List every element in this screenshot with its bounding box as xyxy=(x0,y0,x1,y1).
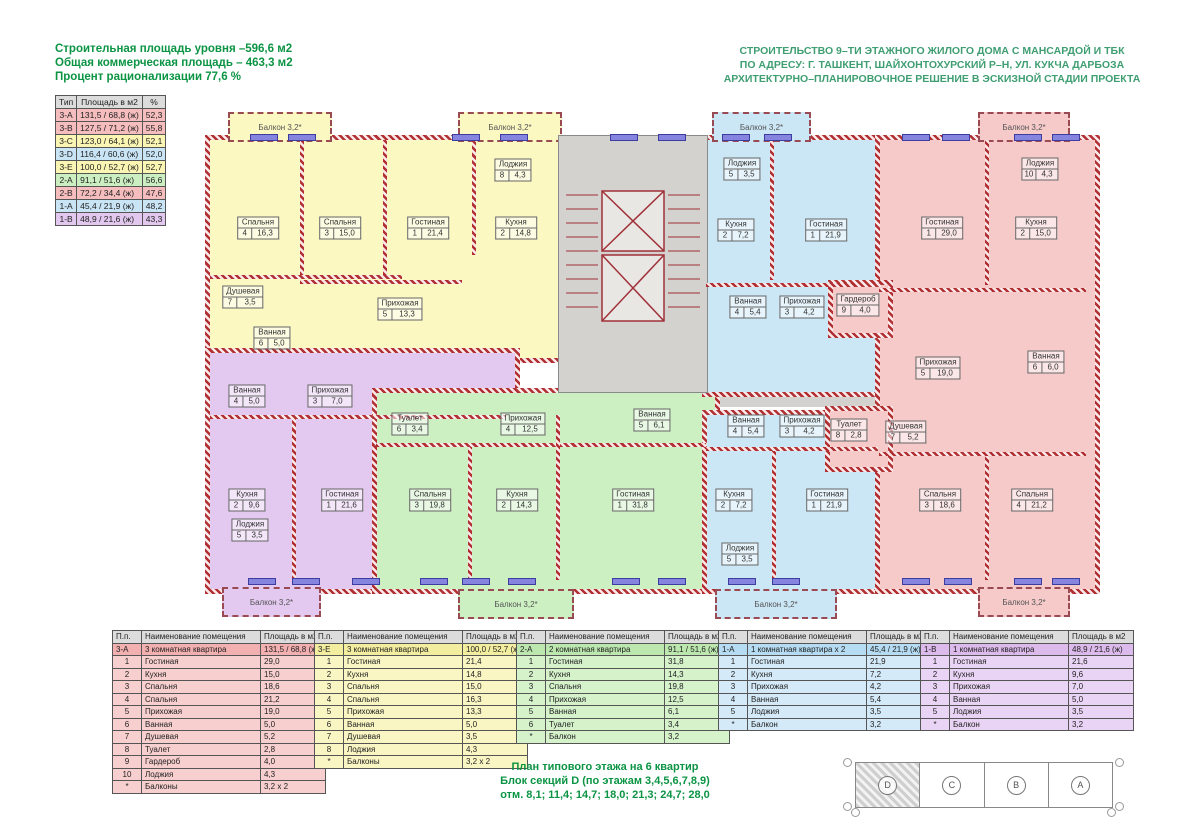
core-drawing xyxy=(558,135,708,393)
table-cell: * xyxy=(113,781,142,794)
room-name: Гостиная xyxy=(407,217,449,229)
window xyxy=(902,578,930,585)
room-label: Прихожая412,5 xyxy=(500,413,545,436)
room-values: 104,3 xyxy=(1021,170,1058,181)
room-number: 5 xyxy=(634,421,648,431)
interior-wall xyxy=(985,140,989,285)
room-area: 7,0 xyxy=(322,397,351,407)
table-cell: 3 xyxy=(517,681,546,694)
table-cell: 5 xyxy=(113,706,142,719)
room-label: Ванная45,4 xyxy=(727,415,764,438)
room-area: 29,0 xyxy=(936,229,962,239)
room-number: 4 xyxy=(229,397,243,407)
table-row: 3Прихожая7,0 xyxy=(921,681,1134,694)
room-values: 65,0 xyxy=(253,339,290,350)
table-cell: Гостиная xyxy=(142,656,261,669)
room-number: 3 xyxy=(320,229,334,239)
room-values: 73,5 xyxy=(222,298,263,309)
table-cell: Душевая xyxy=(142,731,261,744)
table-row: 7Душевая3,5 xyxy=(315,731,528,744)
room-name: Спальня xyxy=(237,217,279,229)
room-label: Прихожая34,2 xyxy=(779,296,824,319)
table-cell: Гардероб xyxy=(142,756,261,769)
table-row: 1Гостиная21,6 xyxy=(921,656,1134,669)
room-name: Кухня xyxy=(715,489,752,501)
room-name: Гостиная xyxy=(921,217,963,229)
table-cell: Спальня xyxy=(344,693,463,706)
table-row: *Балконы3,2 х 2 xyxy=(113,781,326,794)
table-cell: 6 xyxy=(315,718,344,731)
room-values: 84,3 xyxy=(494,171,531,182)
room-number: 3 xyxy=(920,501,934,511)
room-name: Спальня xyxy=(919,489,961,501)
room-name: Кухня xyxy=(228,489,265,501)
room-schedule-table: П.п.Наименование помещенияПлощадь в м21-… xyxy=(920,630,1134,731)
balcony-label: Балкон 3,2* xyxy=(250,598,293,607)
table-header-cell: П.п. xyxy=(719,631,748,644)
room-name: Прихожая xyxy=(915,357,960,369)
apartment-title-row: 1-В1 комнатная квартира48,9 / 21,6 (ж) xyxy=(921,643,1134,656)
interior-wall xyxy=(292,419,296,579)
room-number: 2 xyxy=(229,501,243,511)
balcony-label: Балкон 3,2* xyxy=(1002,123,1045,132)
room-name: Спальня xyxy=(409,489,451,501)
room-number: 5 xyxy=(916,369,930,379)
room-label: Туалет63,4 xyxy=(391,413,428,436)
window xyxy=(1052,578,1080,585)
table-cell: Прихожая xyxy=(748,681,867,694)
room-name: Ванная xyxy=(228,385,265,397)
table-row: 6Туалет3,4 xyxy=(517,718,730,731)
apartment-title-row: 2-А2 комнатная квартира91,1 / 51,6 (ж) xyxy=(517,643,730,656)
table-cell: 3 xyxy=(921,681,950,694)
table-row: 8Туалет2,8 xyxy=(113,743,326,756)
room-area: 19,8 xyxy=(424,501,450,511)
room-values: 56,1 xyxy=(633,421,670,432)
table-cell: 3 xyxy=(113,681,142,694)
room-label: Спальня318,6 xyxy=(919,489,961,512)
room-name: Прихожая xyxy=(377,298,422,310)
room-number: 7 xyxy=(223,298,237,308)
table-cell: 4 xyxy=(517,693,546,706)
room-number: 4 xyxy=(1012,501,1026,511)
room-label: Кухня27,2 xyxy=(717,219,754,242)
table-cell: 4 xyxy=(113,693,142,706)
table-cell: 3,2 xyxy=(665,731,730,744)
table-cell: 5 xyxy=(517,706,546,719)
room-number: 3 xyxy=(410,501,424,511)
table-cell: 10 xyxy=(113,768,142,781)
room-values: 53,5 xyxy=(721,555,758,566)
room-values: 34,2 xyxy=(779,308,824,319)
table-cell: 8 xyxy=(113,743,142,756)
interior-wall xyxy=(300,140,304,275)
room-label: Прихожая34,2 xyxy=(779,415,824,438)
room-number: 1 xyxy=(806,231,820,241)
apartment-title-cell: 3-Е xyxy=(315,643,344,656)
room-label: Лоджия104,3 xyxy=(1021,158,1058,181)
room-values: 131,8 xyxy=(612,501,654,512)
room-values: 121,9 xyxy=(805,231,847,242)
room-area: 4,3 xyxy=(509,171,530,181)
room-number: 10 xyxy=(1022,170,1036,180)
room-area: 5,4 xyxy=(744,308,765,318)
room-name: Лоджия xyxy=(723,158,760,170)
room-name: Прихожая xyxy=(307,385,352,397)
table-row: 10Лоджия4,3 xyxy=(113,768,326,781)
caption-line: отм. 8,1; 11,4; 14,7; 18,0; 21,3; 24,7; … xyxy=(440,788,770,802)
table-cell: * xyxy=(921,718,950,731)
table-cell: 9 xyxy=(113,756,142,769)
table-cell: 8 xyxy=(315,743,344,756)
room-area: 7,2 xyxy=(732,231,753,241)
room-label: Лоджия84,3 xyxy=(494,159,531,182)
table-header-cell: Наименование помещения xyxy=(142,631,261,644)
room-area: 5,2 xyxy=(900,433,925,443)
keyplan-axis-marker xyxy=(1115,758,1124,767)
room-name: Кухня xyxy=(717,219,754,231)
room-area: 15,0 xyxy=(334,229,360,239)
table-cell: Ванная xyxy=(950,693,1069,706)
apartment-title-cell: 1 комнатная квартира х 2 xyxy=(748,643,867,656)
room-number: 4 xyxy=(728,427,742,437)
interior-wall xyxy=(706,283,881,287)
room-label: Кухня215,0 xyxy=(1015,217,1057,240)
room-area: 2,8 xyxy=(845,431,866,441)
window xyxy=(292,578,320,585)
room-label: Гостиная129,0 xyxy=(921,217,963,240)
room-label: Гостиная121,6 xyxy=(321,489,363,512)
table-row: 9Гардероб4,0 xyxy=(113,756,326,769)
interior-wall xyxy=(770,140,774,280)
room-label: Лоджия53,5 xyxy=(723,158,760,181)
table-cell: 3,2 xyxy=(1069,718,1134,731)
table-cell: 7,0 xyxy=(1069,681,1134,694)
room-area: 19,0 xyxy=(930,369,959,379)
room-label: Ванная65,0 xyxy=(253,327,290,350)
room-schedule-table: П.п.Наименование помещенияПлощадь в м23-… xyxy=(112,630,326,794)
room-area: 21,9 xyxy=(821,501,847,511)
table-cell: Ванная xyxy=(142,718,261,731)
table-cell: Душевая xyxy=(344,731,463,744)
window xyxy=(612,578,640,585)
table-cell: 9,6 xyxy=(1069,668,1134,681)
apartment-title-cell: 2 комнатная квартира xyxy=(546,643,665,656)
keyplan-axis-marker xyxy=(851,808,860,817)
balcony-label: Балкон 3,2* xyxy=(258,123,301,132)
room-name: Ванная xyxy=(727,415,764,427)
room-name: Прихожая xyxy=(779,296,824,308)
window xyxy=(352,578,380,585)
room-values: 37,0 xyxy=(307,397,352,408)
table-cell: Кухня xyxy=(142,668,261,681)
room-number: 2 xyxy=(718,231,732,241)
window xyxy=(250,134,278,141)
table-cell: Прихожая xyxy=(950,681,1069,694)
room-name: Гардероб xyxy=(836,294,879,306)
room-values: 121,6 xyxy=(321,501,363,512)
plan-caption: План типового этажа на 6 квартирБлок сек… xyxy=(440,760,770,802)
table-row: 8Лоджия4,3 xyxy=(315,743,528,756)
window xyxy=(420,578,448,585)
table-cell: Прихожая xyxy=(344,706,463,719)
table-row: 7Душевая5,2 xyxy=(113,731,326,744)
table-row: *Балкон3,2 xyxy=(921,718,1134,731)
window xyxy=(288,134,316,141)
table-cell: * xyxy=(719,718,748,731)
room-number: 2 xyxy=(496,229,510,239)
table-cell: 2 xyxy=(113,668,142,681)
room-label: Спальня421,2 xyxy=(1011,489,1053,512)
room-label: Гостиная121,9 xyxy=(805,219,847,242)
room-schedule-table: П.п.Наименование помещенияПлощадь в м22-… xyxy=(516,630,730,744)
room-area: 3,4 xyxy=(406,425,427,435)
interior-wall xyxy=(879,288,1086,292)
keyplan-section-A: A xyxy=(1049,763,1112,807)
room-label: Ванная45,0 xyxy=(228,385,265,408)
table-cell: Кухня xyxy=(748,668,867,681)
keyplan-section-C: C xyxy=(920,763,984,807)
room-name: Ванная xyxy=(253,327,290,339)
room-name: Душевая xyxy=(885,421,926,433)
table-row: 5Лоджия3,5 xyxy=(921,706,1134,719)
room-label: Душевая73,5 xyxy=(222,286,263,309)
room-area: 3,5 xyxy=(736,555,757,565)
room-number: 4 xyxy=(730,308,744,318)
room-values: 63,4 xyxy=(391,425,428,436)
room-area: 31,8 xyxy=(627,501,653,511)
room-label: Туалет82,8 xyxy=(830,419,867,442)
table-row: 1Гостиная21,9 xyxy=(719,656,932,669)
window xyxy=(728,578,756,585)
table-row: *Балкон3,2 xyxy=(719,718,932,731)
table-row: 4Ванная5,4 xyxy=(719,693,932,706)
interior-wall xyxy=(706,447,878,451)
table-cell: 6 xyxy=(517,718,546,731)
table-row: 4Спальня21,2 xyxy=(113,693,326,706)
room-area: 5,0 xyxy=(268,339,289,349)
window xyxy=(772,578,800,585)
room-area: 7,2 xyxy=(730,501,751,511)
room-name: Кухня xyxy=(495,217,537,229)
room-area: 14,8 xyxy=(510,229,536,239)
keyplan-section-label: B xyxy=(1007,776,1026,795)
table-row: 6Ванная5,0 xyxy=(113,718,326,731)
table-header-cell: П.п. xyxy=(517,631,546,644)
room-values: 45,0 xyxy=(228,397,265,408)
apartment-title-row: 3-А3 комнатная квартира131,5 / 68,8 (ж) xyxy=(113,643,326,656)
table-cell: 5 xyxy=(921,706,950,719)
room-area: 21,9 xyxy=(820,231,846,241)
table-cell: 5,0 xyxy=(1069,693,1134,706)
apartment-title-cell: 3 комнатная квартира xyxy=(142,643,261,656)
table-cell: 5 xyxy=(315,706,344,719)
table-cell: 4,3 xyxy=(463,743,528,756)
window xyxy=(764,134,792,141)
balcony-label: Балкон 3,2* xyxy=(740,123,783,132)
window xyxy=(508,578,536,585)
keyplan-bar: DCBA xyxy=(855,762,1113,808)
room-values: 319,8 xyxy=(409,501,451,512)
balcony-label: Балкон 3,2* xyxy=(754,600,797,609)
table-cell: 6 xyxy=(113,718,142,731)
table-row: 5Лоджия3,5 xyxy=(719,706,932,719)
apartment-title-row: 1-А1 комнатная квартира х 245,4 / 21,9 (… xyxy=(719,643,932,656)
keyplan-section-B: B xyxy=(985,763,1049,807)
table-cell: Туалет xyxy=(546,718,665,731)
table-row: 2Кухня14,8 xyxy=(315,668,528,681)
room-number: 5 xyxy=(724,170,738,180)
room-label: Прихожая519,0 xyxy=(915,357,960,380)
interior-wall xyxy=(300,280,462,284)
table-cell: 1 xyxy=(719,656,748,669)
interior-wall xyxy=(985,456,989,580)
table-cell: Спальня xyxy=(142,681,261,694)
table-cell: Кухня xyxy=(950,668,1069,681)
room-number: 8 xyxy=(495,171,509,181)
room-values: 519,0 xyxy=(915,369,960,380)
room-schedule-table: П.п.Наименование помещенияПлощадь в м21-… xyxy=(718,630,932,731)
room-label: Гостиная131,8 xyxy=(612,489,654,512)
room-area: 12,5 xyxy=(515,425,544,435)
table-cell: * xyxy=(315,756,344,769)
room-values: 121,4 xyxy=(407,229,449,240)
table-cell: 4 xyxy=(315,693,344,706)
room-values: 27,2 xyxy=(715,501,752,512)
room-name: Прихожая xyxy=(500,413,545,425)
room-label: Гостиная121,9 xyxy=(806,489,848,512)
table-cell: * xyxy=(517,731,546,744)
room-area: 14,3 xyxy=(511,501,537,511)
table-cell: Гостиная xyxy=(546,656,665,669)
table-header-cell: П.п. xyxy=(113,631,142,644)
room-area: 3,5 xyxy=(246,531,267,541)
room-area: 21,2 xyxy=(1026,501,1052,511)
room-label: Гостиная121,4 xyxy=(407,217,449,240)
table-cell: 21,6 xyxy=(1069,656,1134,669)
window xyxy=(1014,578,1042,585)
interior-wall xyxy=(376,443,706,447)
room-values: 45,4 xyxy=(729,308,766,319)
table-row: 5Прихожая19,0 xyxy=(113,706,326,719)
table-row: 1Гостиная29,0 xyxy=(113,656,326,669)
keyplan-section-label: C xyxy=(942,776,961,795)
table-row: 5Прихожая13,3 xyxy=(315,706,528,719)
room-values: 412,5 xyxy=(500,425,545,436)
table-row: 2Кухня15,0 xyxy=(113,668,326,681)
table-cell: Спальня xyxy=(344,681,463,694)
window xyxy=(1052,134,1080,141)
room-name: Туалет xyxy=(830,419,867,431)
room-area: 3,5 xyxy=(738,170,759,180)
balcony: Балкон 3,2* xyxy=(458,589,574,619)
room-name: Ванная xyxy=(729,296,766,308)
room-name: Лоджия xyxy=(1021,158,1058,170)
window xyxy=(1014,134,1042,141)
window xyxy=(942,134,970,141)
room-label: Прихожая37,0 xyxy=(307,385,352,408)
table-row: 1Гостиная21,4 xyxy=(315,656,528,669)
table-row: 2Кухня14,3 xyxy=(517,668,730,681)
table-header-cell: Площадь в м2 xyxy=(1069,631,1134,644)
balcony: Балкон 3,2* xyxy=(978,587,1070,617)
room-number: 3 xyxy=(780,427,794,437)
table-cell: 7 xyxy=(315,731,344,744)
apartment-title-row: 3-Е3 комнатная квартира100,0 / 52,7 (ж) xyxy=(315,643,528,656)
interior-wall xyxy=(472,140,476,255)
balcony: Балкон 3,2* xyxy=(228,112,332,142)
room-name: Туалет xyxy=(391,413,428,425)
room-values: 215,0 xyxy=(1015,229,1057,240)
room-label: Ванная56,1 xyxy=(633,409,670,432)
table-cell: 3,5 xyxy=(1069,706,1134,719)
window xyxy=(500,134,528,141)
table-row: 2Кухня9,6 xyxy=(921,668,1134,681)
table-cell: Ванная xyxy=(344,718,463,731)
table-row: 2Кухня7,2 xyxy=(719,668,932,681)
room-number: 9 xyxy=(837,306,851,316)
room-label: Кухня214,8 xyxy=(495,217,537,240)
room-label: Кухня29,6 xyxy=(228,489,265,512)
room-area: 21,4 xyxy=(422,229,448,239)
table-cell: Балкон xyxy=(748,718,867,731)
section-key-plan: DCBA xyxy=(843,756,1123,816)
table-cell: Ванная xyxy=(748,693,867,706)
balcony-label: Балкон 3,2* xyxy=(494,600,537,609)
table-cell: Балконы xyxy=(142,781,261,794)
table-header-cell: Наименование помещения xyxy=(546,631,665,644)
room-number: 6 xyxy=(254,339,268,349)
room-values: 121,9 xyxy=(806,501,848,512)
balcony-label: Балкон 3,2* xyxy=(1002,598,1045,607)
room-label: Прихожая513,3 xyxy=(377,298,422,321)
room-label: Гардероб94,0 xyxy=(836,294,879,317)
room-name: Лоджия xyxy=(231,519,268,531)
room-number: 4 xyxy=(501,425,515,435)
table-cell: 2 xyxy=(719,668,748,681)
room-number: 3 xyxy=(780,308,794,318)
interior-wall xyxy=(210,415,506,419)
room-area: 18,6 xyxy=(934,501,960,511)
room-number: 1 xyxy=(613,501,627,511)
room-area: 6,0 xyxy=(1042,363,1063,373)
table-cell: 1 xyxy=(113,656,142,669)
table-header-cell: Наименование помещения xyxy=(748,631,867,644)
room-values: 75,2 xyxy=(885,433,926,444)
interior-wall xyxy=(468,447,472,580)
room-values: 214,3 xyxy=(496,501,538,512)
room-name: Спальня xyxy=(319,217,361,229)
room-label: Ванная66,0 xyxy=(1027,351,1064,374)
caption-line: План типового этажа на 6 квартир xyxy=(440,760,770,774)
window xyxy=(722,134,750,141)
room-number: 8 xyxy=(831,431,845,441)
table-cell: Ванная xyxy=(546,706,665,719)
table-cell: Спальня xyxy=(546,681,665,694)
room-number: 2 xyxy=(1016,229,1030,239)
table-cell: 1 xyxy=(921,656,950,669)
room-number: 5 xyxy=(722,555,736,565)
keyplan-section-D: D xyxy=(856,763,920,807)
room-values: 318,6 xyxy=(919,501,961,512)
table-cell: 1 xyxy=(517,656,546,669)
room-values: 53,5 xyxy=(723,170,760,181)
apartment-title-cell: 1-А xyxy=(719,643,748,656)
table-header-cell: Наименование помещения xyxy=(344,631,463,644)
table-cell: Спальня xyxy=(142,693,261,706)
room-number: 3 xyxy=(308,397,322,407)
table-cell: Гостиная xyxy=(344,656,463,669)
